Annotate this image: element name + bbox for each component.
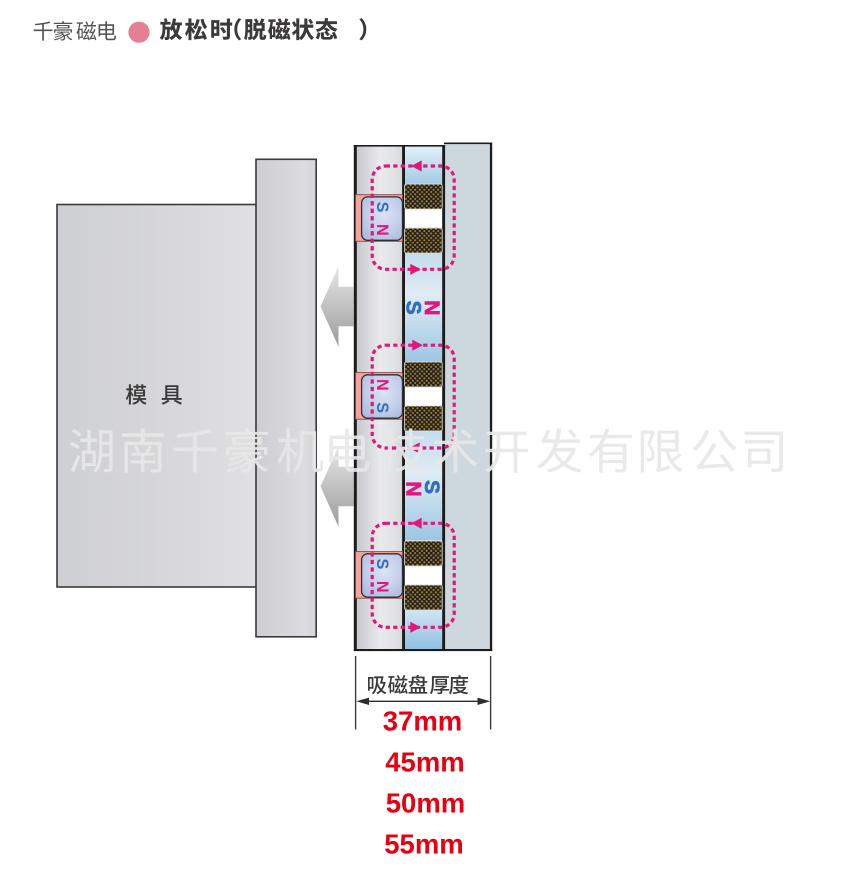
svg-text:50mm: 50mm [386, 788, 466, 819]
svg-text:N: N [420, 300, 443, 315]
svg-text:S: S [373, 402, 391, 413]
svg-text:N: N [373, 379, 391, 391]
svg-text:S: S [373, 558, 391, 569]
svg-text:37mm: 37mm [383, 706, 463, 737]
svg-text:55mm: 55mm [384, 829, 464, 860]
svg-text:45mm: 45mm [385, 747, 465, 778]
svg-text:S: S [373, 202, 391, 213]
svg-text:S: S [420, 480, 443, 494]
svg-text:N: N [373, 224, 391, 236]
svg-text:N: N [373, 581, 391, 593]
